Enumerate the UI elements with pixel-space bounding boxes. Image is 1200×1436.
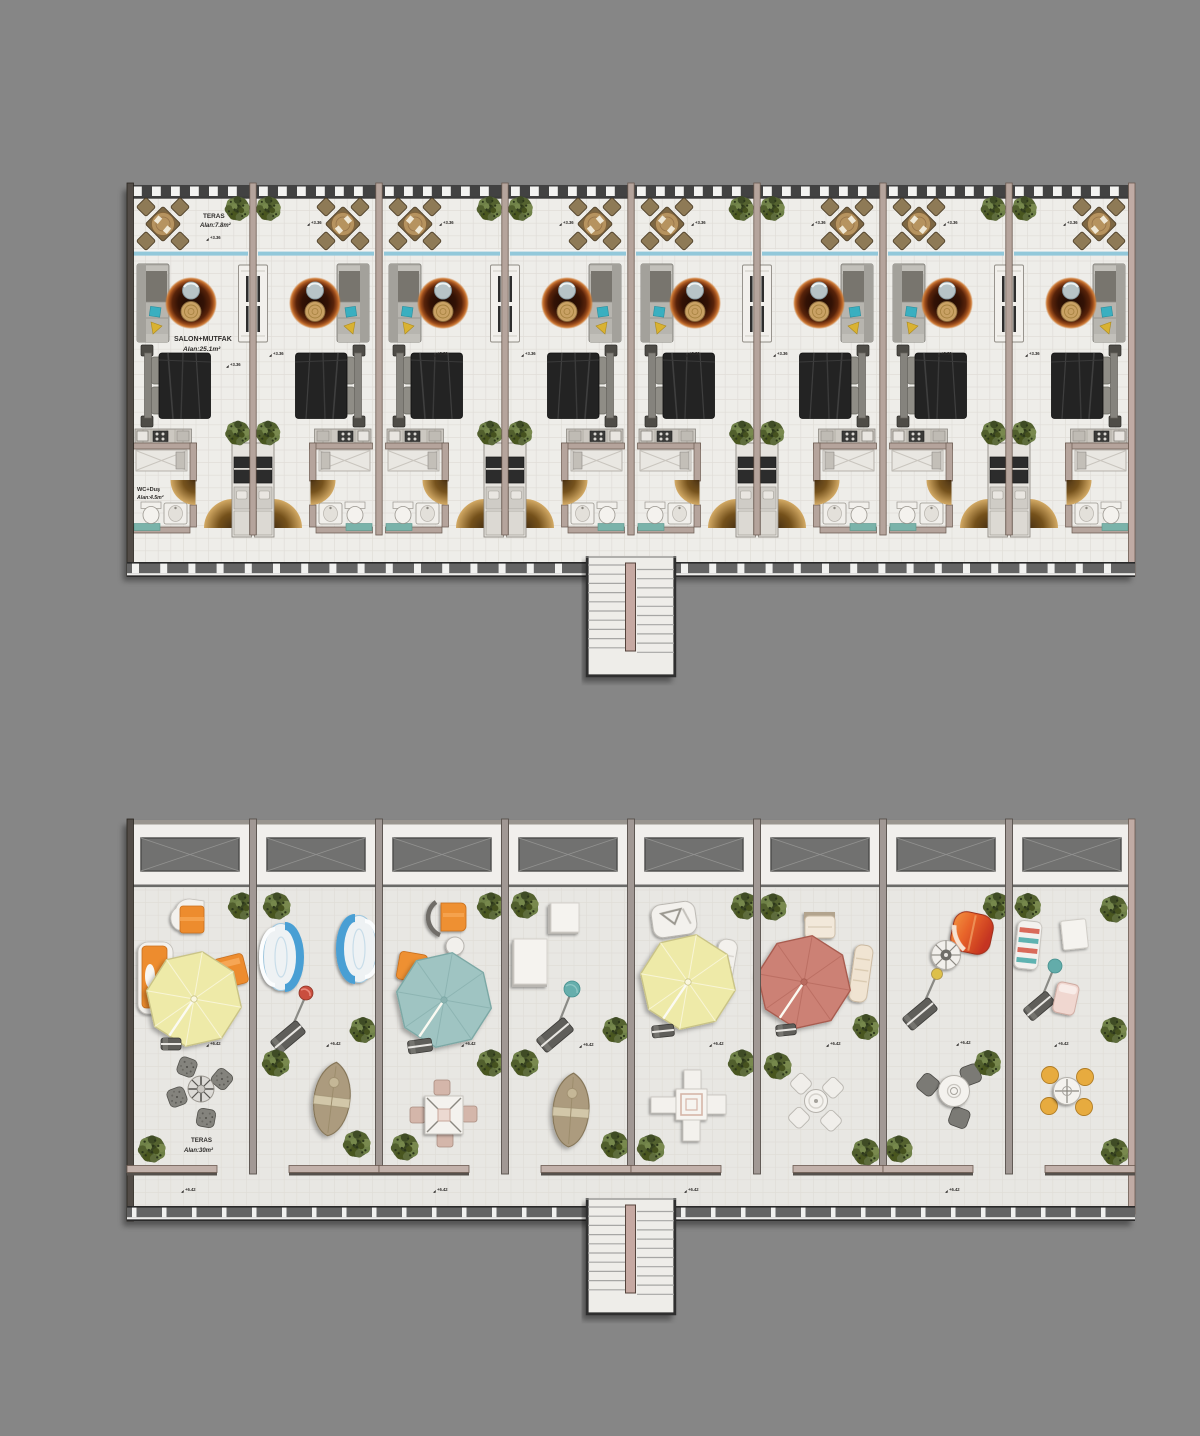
- svg-text:+3.36: +3.36: [815, 220, 826, 225]
- svg-text:+6.42: +6.42: [437, 1187, 448, 1192]
- svg-text:+3.36: +3.36: [689, 351, 700, 356]
- svg-text:+6.42: +6.42: [185, 1187, 196, 1192]
- svg-text:+6.42: +6.42: [465, 1041, 476, 1046]
- svg-text:+3.36: +3.36: [563, 220, 574, 225]
- svg-text:Alan:30m²: Alan:30m²: [183, 1147, 214, 1154]
- svg-text:Alan:4.5m²: Alan:4.5m²: [136, 495, 164, 501]
- svg-text:+3.36: +3.36: [1029, 351, 1040, 356]
- svg-text:+3.36: +3.36: [230, 362, 241, 367]
- svg-text:+6.42: +6.42: [960, 1040, 971, 1045]
- svg-text:+3.36: +3.36: [941, 351, 952, 356]
- svg-text:+3.36: +3.36: [443, 220, 454, 225]
- svg-text:+6.42: +6.42: [830, 1041, 841, 1046]
- svg-text:+3.36: +3.36: [777, 351, 788, 356]
- svg-text:+6.42: +6.42: [210, 1041, 221, 1046]
- svg-text:+6.42: +6.42: [713, 1041, 724, 1046]
- svg-text:Alan:7.8m²: Alan:7.8m²: [199, 222, 232, 229]
- svg-text:+3.36: +3.36: [437, 351, 448, 356]
- svg-text:+6.42: +6.42: [688, 1187, 699, 1192]
- svg-text:+3.36: +3.36: [210, 235, 221, 240]
- svg-text:SALON+MUTFAK: SALON+MUTFAK: [174, 336, 232, 343]
- svg-text:+6.42: +6.42: [330, 1041, 341, 1046]
- svg-text:+3.36: +3.36: [311, 220, 322, 225]
- svg-text:WC+Duş: WC+Duş: [137, 487, 160, 493]
- svg-text:+3.36: +3.36: [947, 220, 958, 225]
- svg-text:+6.42: +6.42: [583, 1042, 594, 1047]
- svg-text:+6.42: +6.42: [1058, 1041, 1069, 1046]
- svg-text:Alan:25.1m²: Alan:25.1m²: [182, 346, 221, 353]
- svg-text:+3.36: +3.36: [273, 351, 284, 356]
- svg-text:TERAS: TERAS: [203, 213, 225, 220]
- svg-text:+3.36: +3.36: [525, 351, 536, 356]
- svg-text:TERAS: TERAS: [191, 1137, 212, 1144]
- svg-text:+6.42: +6.42: [949, 1187, 960, 1192]
- svg-text:+3.36: +3.36: [1067, 220, 1078, 225]
- svg-text:+3.36: +3.36: [695, 220, 706, 225]
